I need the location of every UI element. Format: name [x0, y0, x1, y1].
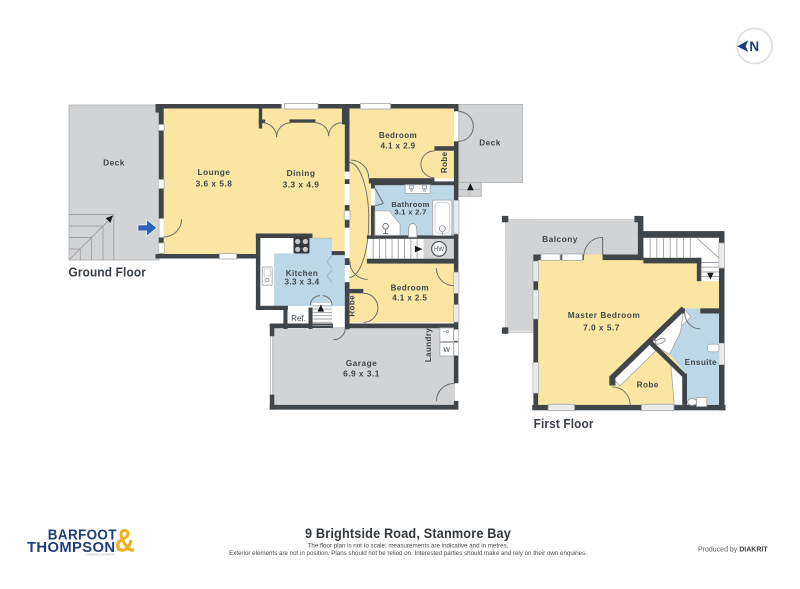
svg-text:Garage: Garage: [346, 358, 378, 368]
svg-text:Robe: Robe: [440, 151, 449, 173]
svg-text:3.3 x 4.9: 3.3 x 4.9: [283, 179, 320, 189]
svg-text:4.1 x 2.9: 4.1 x 2.9: [380, 141, 415, 150]
svg-text:Robe: Robe: [348, 295, 357, 317]
svg-text:Laundry: Laundry: [424, 328, 433, 363]
svg-text:Exterior elements are not in p: Exterior elements are not in position. P…: [229, 550, 587, 557]
svg-text:Ref.: Ref.: [291, 314, 306, 323]
svg-text:Bedroom: Bedroom: [379, 131, 417, 140]
svg-text:Bedroom: Bedroom: [391, 284, 429, 293]
svg-text:Dining: Dining: [287, 168, 316, 178]
svg-text:Ensuite: Ensuite: [685, 358, 717, 367]
svg-text:Robe: Robe: [637, 380, 659, 389]
svg-text:9 Brightside Road, Stanmore Ba: 9 Brightside Road, Stanmore Bay: [305, 526, 511, 542]
svg-text:Kitchen: Kitchen: [286, 269, 318, 278]
svg-text:&: &: [115, 523, 135, 559]
svg-text:Master Bedroom: Master Bedroom: [568, 310, 640, 320]
svg-text:Produced by DIAKRIT: Produced by DIAKRIT: [698, 546, 768, 553]
svg-text:Ground Floor: Ground Floor: [69, 265, 147, 280]
svg-text:3.6 x 5.8: 3.6 x 5.8: [196, 178, 233, 188]
svg-text:N: N: [749, 39, 759, 54]
svg-text:3.3 x 3.4: 3.3 x 3.4: [284, 278, 319, 287]
svg-text:Deck: Deck: [103, 158, 125, 168]
svg-text:6.9 x 3.1: 6.9 x 3.1: [343, 369, 380, 379]
svg-text:First Floor: First Floor: [534, 416, 594, 431]
svg-text:COMMERCIAL & RESIDENTIAL: COMMERCIAL & RESIDENTIAL: [87, 554, 116, 557]
svg-text:Deck: Deck: [479, 139, 501, 148]
svg-text:HW: HW: [434, 247, 444, 253]
svg-text:4.1 x 2.5: 4.1 x 2.5: [392, 293, 427, 302]
svg-text:The floor plan is not to scale: The floor plan is not to scale; measurem…: [308, 543, 509, 550]
svg-text:Balcony: Balcony: [542, 234, 578, 244]
svg-text:3.1 x 2.7: 3.1 x 2.7: [394, 208, 426, 217]
svg-text:W: W: [443, 347, 450, 354]
svg-text:Lounge: Lounge: [198, 167, 231, 177]
svg-text:7.0 x 5.7: 7.0 x 5.7: [583, 322, 620, 332]
